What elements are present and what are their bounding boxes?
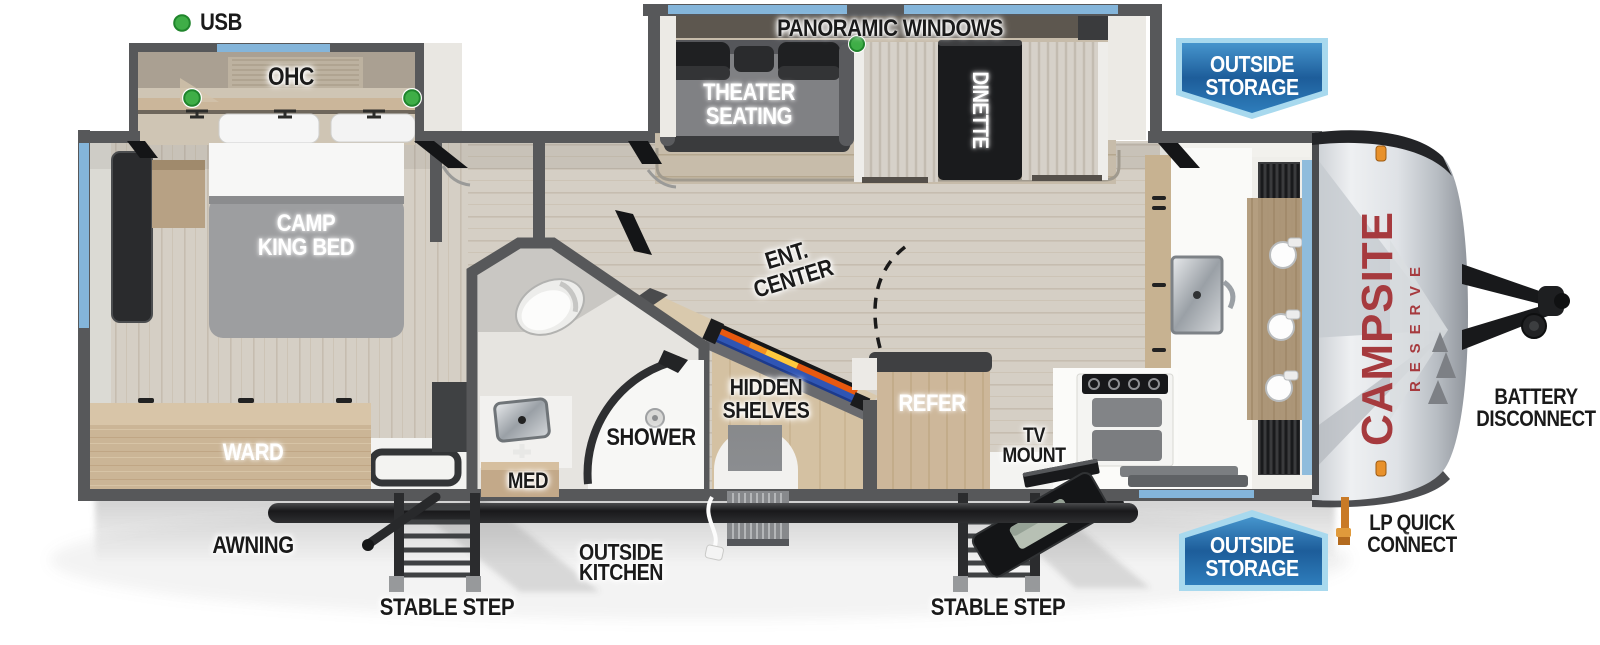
svg-text:CAMPSITE: CAMPSITE (1353, 211, 1402, 446)
svg-text:RESERVE: RESERVE (1407, 262, 1424, 392)
